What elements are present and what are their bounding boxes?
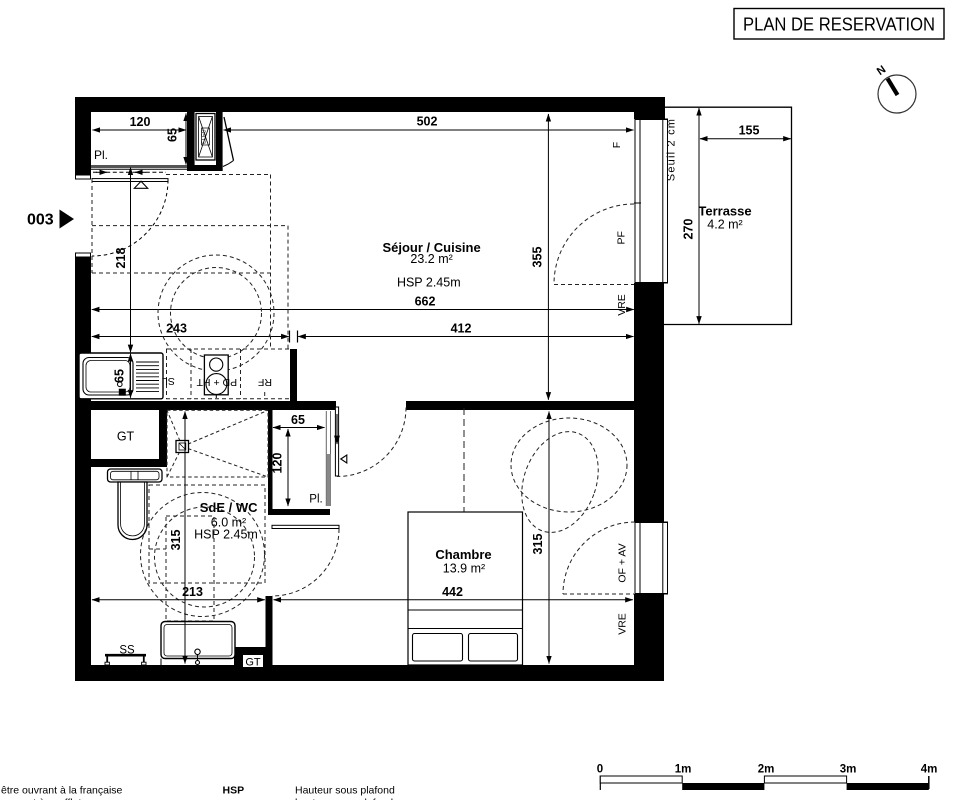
svg-text:SL: SL (162, 375, 175, 387)
svg-text:315: 315 (531, 534, 545, 555)
svg-text:Chambre: Chambre (435, 547, 491, 562)
svg-text:13.9 m²: 13.9 m² (443, 562, 485, 576)
svg-text:1m: 1m (675, 764, 692, 776)
svg-text:être ouvrant à la française: être ouvrant à la française (1, 785, 123, 797)
svg-text:PD + HT: PD + HT (196, 376, 237, 388)
svg-text:502: 502 (417, 115, 438, 129)
svg-text:VRE: VRE (617, 613, 629, 635)
svg-text:VRE: VRE (616, 294, 628, 316)
svg-text:355: 355 (531, 247, 545, 268)
svg-text:65: 65 (291, 413, 305, 427)
svg-text:3m: 3m (840, 764, 857, 776)
svg-text:65: 65 (113, 369, 127, 383)
svg-text:GT: GT (245, 657, 261, 669)
svg-text:PLAN DE RESERVATION: PLAN DE RESERVATION (743, 14, 935, 35)
svg-text:0: 0 (597, 764, 603, 776)
svg-text:RF: RF (258, 376, 272, 388)
svg-text:4.2 m²: 4.2 m² (707, 218, 742, 232)
svg-text:GT: GT (117, 430, 135, 444)
svg-text:243: 243 (166, 322, 187, 336)
svg-text:Seuil 2 cm: Seuil 2 cm (666, 118, 678, 181)
svg-text:Terrasse: Terrasse (698, 204, 751, 219)
svg-text:65: 65 (166, 128, 180, 142)
svg-text:Hauteur sous plafond: Hauteur sous plafond (295, 785, 395, 797)
svg-text:SS: SS (119, 645, 135, 657)
svg-text:HSP: HSP (223, 785, 245, 797)
svg-text:412: 412 (451, 322, 472, 336)
svg-text:HSP 2.45m: HSP 2.45m (397, 276, 461, 290)
svg-text:2m: 2m (758, 764, 775, 776)
svg-text:003: 003 (27, 212, 54, 229)
svg-text:HSP 2.45m: HSP 2.45m (194, 528, 258, 542)
svg-text:442: 442 (442, 585, 463, 599)
svg-text:662: 662 (415, 295, 436, 309)
svg-text:270: 270 (682, 219, 696, 240)
svg-text:4m: 4m (921, 764, 938, 776)
svg-text:ELEC: ELEC (202, 129, 208, 143)
svg-text:218: 218 (114, 248, 128, 269)
svg-text:OF + AV: OF + AV (617, 543, 629, 582)
svg-text:120: 120 (270, 453, 284, 474)
svg-text:Pl.: Pl. (309, 494, 322, 506)
svg-text:155: 155 (739, 124, 760, 138)
svg-text:23.2 m²: 23.2 m² (410, 252, 452, 266)
svg-text:Pl.: Pl. (94, 148, 108, 162)
svg-text:120: 120 (130, 115, 151, 129)
svg-text:315: 315 (169, 530, 183, 551)
svg-text:PF: PF (615, 231, 627, 244)
svg-text:F: F (611, 142, 623, 148)
